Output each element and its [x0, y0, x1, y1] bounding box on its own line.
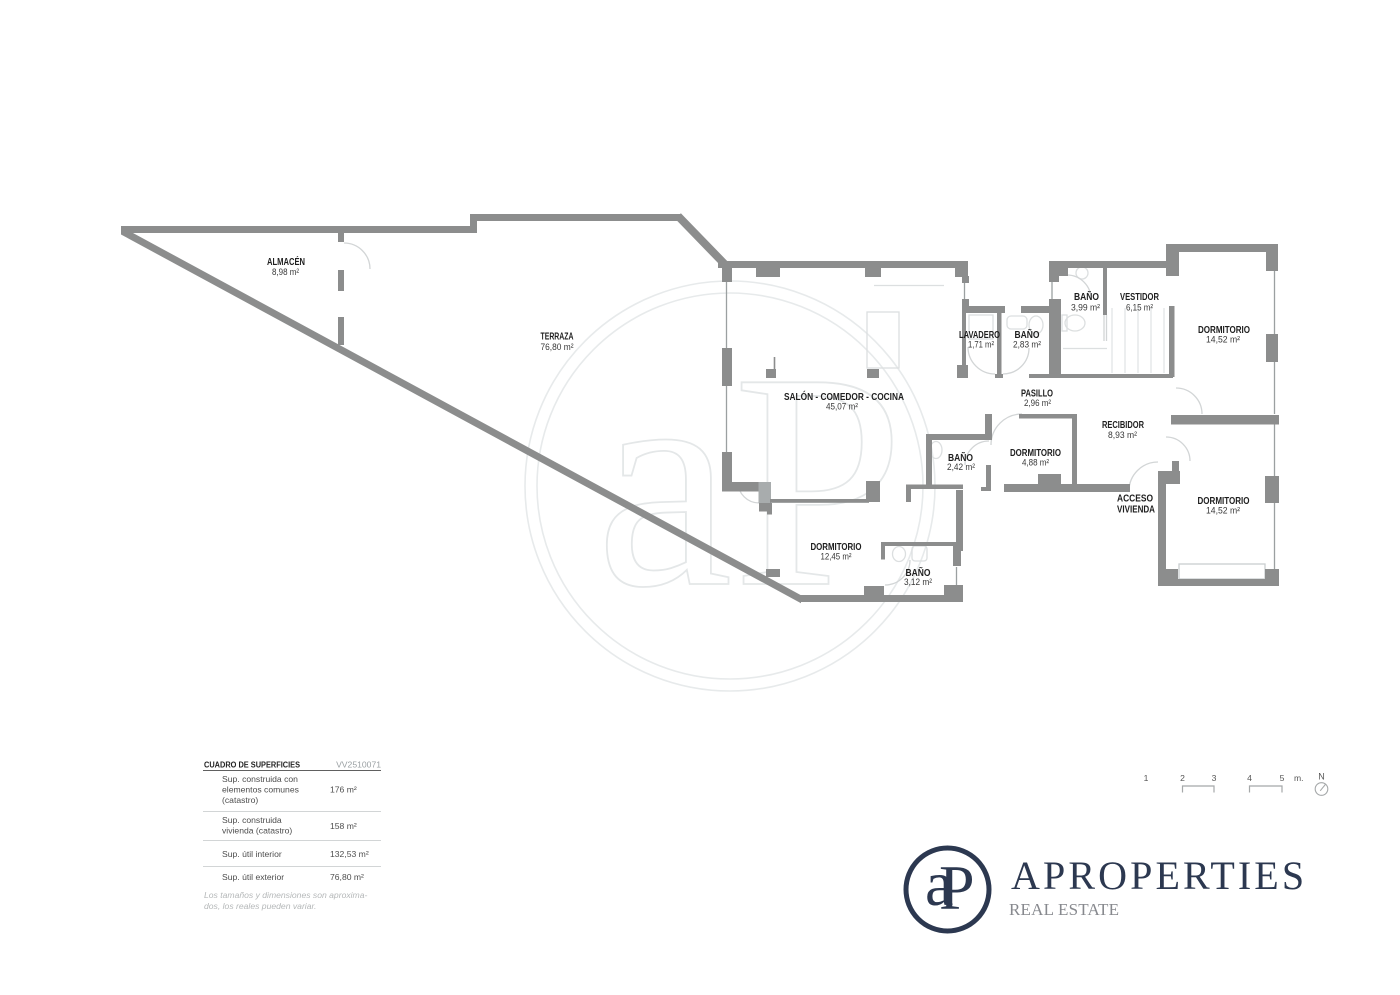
- svg-text:elementos comunes: elementos comunes: [222, 785, 299, 795]
- svg-text:REAL ESTATE: REAL ESTATE: [1009, 900, 1119, 919]
- svg-text:Sup. útil exterior: Sup. útil exterior: [222, 872, 284, 882]
- svg-text:3,12 m²: 3,12 m²: [904, 577, 933, 588]
- svg-text:Sup. construida: Sup. construida: [222, 815, 282, 825]
- svg-text:VIVIENDA: VIVIENDA: [1117, 505, 1155, 516]
- svg-text:14,52 m²: 14,52 m²: [1206, 335, 1241, 346]
- svg-text:VESTIDOR: VESTIDOR: [1120, 292, 1159, 303]
- svg-text:45,07 m²: 45,07 m²: [826, 402, 859, 413]
- svg-text:3: 3: [1212, 773, 1217, 783]
- svg-text:6,15 m²: 6,15 m²: [1126, 303, 1154, 314]
- svg-text:76,80 m²: 76,80 m²: [541, 342, 575, 353]
- svg-text:Los tamaños y dimensiones son: Los tamaños y dimensiones son aproxima-: [204, 890, 367, 900]
- svg-text:132,53 m²: 132,53 m²: [330, 849, 369, 859]
- svg-text:176 m²: 176 m²: [330, 785, 357, 795]
- svg-text:VV2510071: VV2510071: [336, 760, 381, 770]
- svg-text:2,83 m²: 2,83 m²: [1013, 340, 1042, 351]
- svg-text:APROPERTIES: APROPERTIES: [1011, 853, 1307, 898]
- svg-text:Sup. útil interior: Sup. útil interior: [222, 849, 282, 859]
- svg-text:P: P: [939, 852, 975, 923]
- svg-text:12,45 m²: 12,45 m²: [821, 552, 853, 563]
- svg-text:N: N: [1318, 772, 1325, 782]
- svg-text:8,98 m²: 8,98 m²: [272, 267, 300, 278]
- svg-text:5: 5: [1280, 773, 1285, 783]
- svg-text:2: 2: [1180, 773, 1185, 783]
- svg-text:4: 4: [1247, 773, 1252, 783]
- svg-text:158 m²: 158 m²: [330, 821, 357, 831]
- svg-text:1: 1: [1144, 773, 1149, 783]
- svg-text:(catastro): (catastro): [222, 795, 258, 805]
- svg-text:76,80 m²: 76,80 m²: [330, 872, 364, 882]
- svg-text:Sup. construida con: Sup. construida con: [222, 774, 298, 784]
- svg-text:1,71 m²: 1,71 m²: [968, 340, 995, 351]
- svg-text:dos, los reales pueden variar.: dos, los reales pueden variar.: [204, 901, 316, 911]
- svg-text:BAÑO: BAÑO: [1074, 292, 1099, 303]
- svg-text:TERRAZA: TERRAZA: [541, 332, 574, 343]
- svg-text:14,52 m²: 14,52 m²: [1206, 506, 1241, 517]
- svg-text:2,42 m²: 2,42 m²: [947, 462, 976, 473]
- svg-text:3,99 m²: 3,99 m²: [1071, 303, 1101, 314]
- svg-text:2,96 m²: 2,96 m²: [1024, 398, 1052, 409]
- svg-text:m.: m.: [1294, 773, 1304, 783]
- svg-text:ACCESO: ACCESO: [1117, 494, 1153, 505]
- svg-text:CUADRO DE SUPERFICIES: CUADRO DE SUPERFICIES: [204, 760, 300, 770]
- svg-text:vivienda (catastro): vivienda (catastro): [222, 826, 292, 836]
- svg-text:4,88 m²: 4,88 m²: [1022, 458, 1050, 469]
- svg-text:8,93 m²: 8,93 m²: [1108, 430, 1138, 441]
